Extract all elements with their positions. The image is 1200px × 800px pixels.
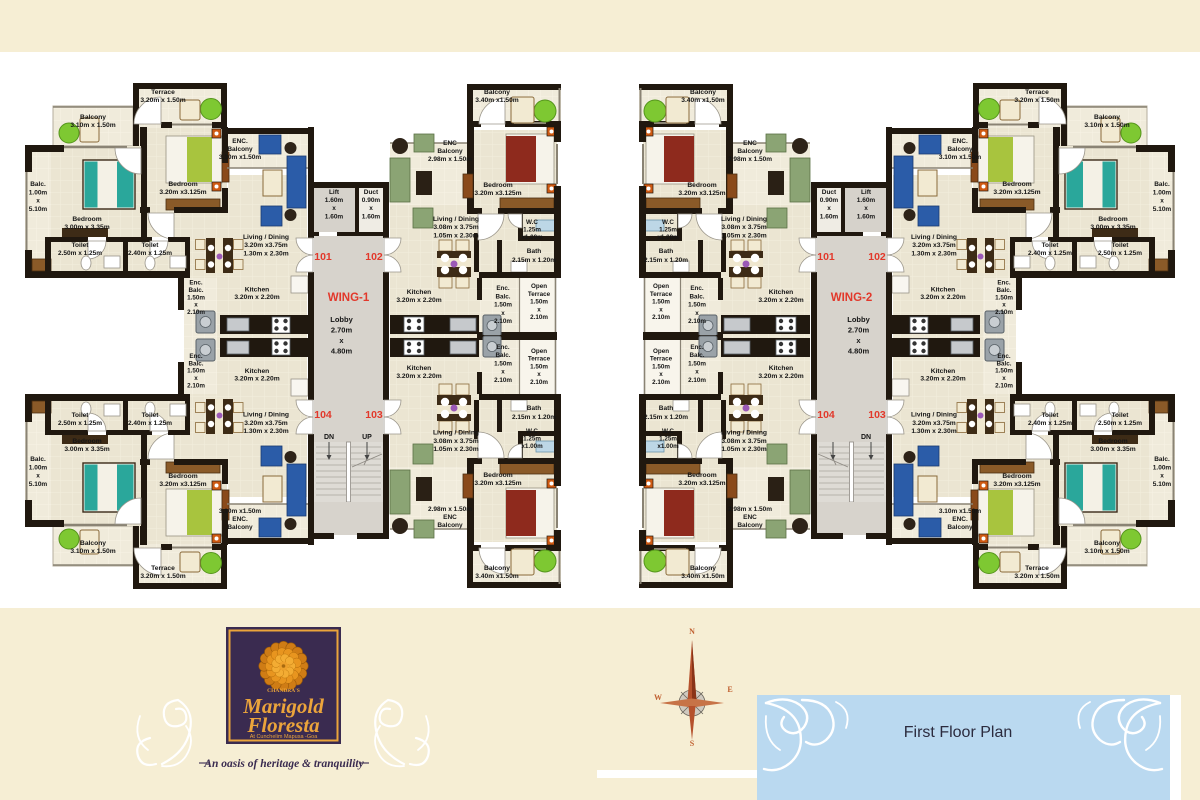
svg-text:Living / Dining: Living / Dining — [911, 234, 957, 241]
svg-text:Bedroom: Bedroom — [72, 216, 101, 223]
svg-text:Bedroom: Bedroom — [483, 182, 512, 189]
svg-text:An oasis of heritage & tranqui: An oasis of heritage & tranquility — [203, 758, 364, 770]
svg-text:3.20m x3.75m: 3.20m x3.75m — [912, 242, 956, 249]
svg-text:1.30m x 2.30m: 1.30m x 2.30m — [243, 428, 288, 435]
svg-text:x: x — [695, 310, 699, 317]
svg-text:1.50m: 1.50m — [688, 360, 706, 367]
svg-text:ENC.: ENC. — [232, 138, 248, 145]
svg-text:Open: Open — [531, 283, 547, 290]
svg-text:x: x — [1002, 302, 1006, 309]
svg-text:x: x — [537, 306, 541, 313]
svg-text:2.15m x 1.20m: 2.15m x 1.20m — [512, 257, 556, 264]
svg-text:Enc.: Enc. — [690, 344, 704, 351]
svg-text:Lift: Lift — [329, 189, 340, 196]
svg-text:Toilet: Toilet — [1112, 412, 1130, 419]
svg-text:x: x — [1160, 473, 1164, 480]
svg-text:Balc.: Balc. — [30, 181, 46, 188]
svg-text:1.00m: 1.00m — [1153, 464, 1172, 471]
svg-text:First Floor Plan: First Floor Plan — [904, 724, 1012, 741]
svg-text:x: x — [36, 198, 40, 205]
svg-text:3.20m x3.125m: 3.20m x3.125m — [993, 189, 1040, 196]
svg-text:3.20m x3.125m: 3.20m x3.125m — [993, 481, 1040, 488]
svg-text:x: x — [194, 375, 198, 382]
svg-text:1.50m: 1.50m — [652, 299, 670, 306]
svg-text:Balcony: Balcony — [690, 89, 716, 96]
svg-text:Terrace: Terrace — [528, 291, 551, 298]
svg-text:Balcony: Balcony — [1094, 540, 1120, 547]
svg-text:Balc.: Balc. — [689, 293, 704, 300]
svg-text:Living / Dining: Living / Dining — [433, 216, 479, 223]
svg-text:3.20m x3.125m: 3.20m x3.125m — [159, 481, 206, 488]
svg-text:Balc.: Balc. — [495, 293, 510, 300]
svg-text:Kitchen: Kitchen — [407, 365, 432, 372]
svg-text:5.10m: 5.10m — [29, 206, 48, 213]
svg-text:1.50m: 1.50m — [187, 368, 205, 375]
svg-text:3.10m x 1.50m: 3.10m x 1.50m — [70, 122, 115, 129]
svg-text:3.20m x3.75m: 3.20m x3.75m — [244, 242, 288, 249]
svg-text:Bedroom: Bedroom — [1002, 181, 1031, 188]
svg-text:2.50m x 1.25m: 2.50m x 1.25m — [1098, 250, 1142, 257]
svg-text:1.60m: 1.60m — [325, 197, 344, 204]
svg-text:Balcony: Balcony — [227, 146, 253, 153]
svg-text:x: x — [827, 205, 831, 212]
svg-text:1.30m x 2.30m: 1.30m x 2.30m — [911, 428, 956, 435]
svg-text:x: x — [537, 371, 541, 378]
svg-text:Balcony: Balcony — [437, 522, 463, 529]
svg-text:1.05m x 2.30m: 1.05m x 2.30m — [721, 232, 766, 239]
svg-text:1.00m: 1.00m — [29, 189, 48, 196]
svg-text:3.20m x3.75m: 3.20m x3.75m — [912, 420, 956, 427]
svg-text:Enc.: Enc. — [189, 353, 203, 360]
svg-text:Balcony: Balcony — [484, 89, 510, 96]
svg-text:W.C: W.C — [526, 219, 538, 226]
svg-text:2.50m x 1.25m: 2.50m x 1.25m — [58, 420, 102, 427]
svg-text:x1.00m: x1.00m — [657, 234, 679, 241]
svg-text:103: 103 — [365, 409, 383, 421]
svg-text:3.10m x1.50m: 3.10m x1.50m — [939, 508, 982, 515]
svg-text:2.15m x 1.20m: 2.15m x 1.20m — [644, 414, 688, 421]
svg-text:x: x — [1002, 375, 1006, 382]
svg-text:103: 103 — [868, 409, 886, 421]
svg-text:1.30m x 2.30m: 1.30m x 2.30m — [243, 250, 288, 257]
svg-text:ENC: ENC — [443, 140, 457, 147]
svg-text:Toilet: Toilet — [1112, 242, 1130, 249]
svg-text:Bedroom: Bedroom — [1098, 216, 1127, 223]
svg-text:2.10m: 2.10m — [995, 383, 1013, 390]
svg-text:1.30m x 2.30m: 1.30m x 2.30m — [911, 250, 956, 257]
svg-text:x: x — [36, 473, 40, 480]
svg-text:Living / Dining: Living / Dining — [721, 216, 767, 223]
svg-text:Balcony: Balcony — [1094, 114, 1120, 121]
svg-text:2.50m x 1.25m: 2.50m x 1.25m — [58, 250, 102, 257]
svg-text:Enc.: Enc. — [496, 285, 510, 292]
svg-text:3.40m x1.50m: 3.40m x1.50m — [475, 573, 519, 580]
svg-text:1.25m: 1.25m — [659, 436, 677, 443]
svg-text:5.10m: 5.10m — [1153, 206, 1172, 213]
svg-text:UP: UP — [362, 434, 372, 441]
svg-text:Kitchen: Kitchen — [931, 287, 956, 294]
svg-text:2.98m x 1.50m: 2.98m x 1.50m — [728, 156, 772, 163]
svg-text:ENC: ENC — [743, 514, 757, 521]
svg-text:ENC: ENC — [443, 514, 457, 521]
svg-text:Balcony: Balcony — [690, 565, 716, 572]
svg-text:DN: DN — [324, 434, 334, 441]
svg-text:2.15m x 1.20m: 2.15m x 1.20m — [512, 414, 556, 421]
svg-text:3.20m x 1.50m: 3.20m x 1.50m — [1014, 573, 1059, 580]
svg-text:Balcony: Balcony — [437, 148, 463, 155]
svg-text:Balc.: Balc. — [996, 360, 1011, 367]
svg-text:2.10m: 2.10m — [688, 377, 706, 384]
svg-text:2.10m: 2.10m — [995, 309, 1013, 316]
svg-text:Balc.: Balc. — [188, 287, 203, 294]
svg-text:Lobby: Lobby — [847, 315, 870, 324]
svg-text:Bath: Bath — [659, 248, 673, 255]
svg-text:1.25m: 1.25m — [523, 436, 541, 443]
svg-text:2.70m: 2.70m — [848, 326, 870, 335]
svg-text:0.90m: 0.90m — [820, 197, 839, 204]
svg-text:Living / Dining: Living / Dining — [721, 430, 767, 437]
svg-text:1.00m: 1.00m — [29, 464, 48, 471]
svg-text:Toilet: Toilet — [72, 242, 90, 249]
svg-text:Toilet: Toilet — [142, 242, 160, 249]
svg-text:2.40m x 1.25m: 2.40m x 1.25m — [1028, 250, 1072, 257]
svg-text:Open: Open — [531, 348, 547, 355]
svg-text:5.10m: 5.10m — [1153, 481, 1172, 488]
svg-text:2.10m: 2.10m — [652, 379, 670, 386]
svg-text:3.20m x 2.20m: 3.20m x 2.20m — [758, 297, 803, 304]
svg-text:3.08m x 3.75m: 3.08m x 3.75m — [721, 438, 766, 445]
svg-text:2.40m x 1.25m: 2.40m x 1.25m — [128, 250, 172, 257]
svg-text:ENC.: ENC. — [952, 516, 968, 523]
svg-text:3.08m x 3.75m: 3.08m x 3.75m — [433, 224, 478, 231]
svg-text:Enc.: Enc. — [189, 280, 203, 287]
svg-text:3.10m x1.50m: 3.10m x1.50m — [939, 154, 982, 161]
svg-text:Balc.: Balc. — [30, 456, 46, 463]
svg-text:Kitchen: Kitchen — [769, 365, 794, 372]
svg-text:WING-2: WING-2 — [831, 292, 873, 304]
svg-text:Balcony: Balcony — [484, 565, 510, 572]
svg-text:x: x — [501, 369, 505, 376]
svg-text:1.05m x 2.30m: 1.05m x 2.30m — [433, 232, 478, 239]
svg-text:At Cunchelim Mapusa -Goa: At Cunchelim Mapusa -Goa — [250, 734, 318, 740]
svg-text:104: 104 — [314, 409, 332, 421]
svg-text:2.10m: 2.10m — [688, 318, 706, 325]
svg-text:4.80m: 4.80m — [331, 347, 353, 356]
svg-text:Terrace: Terrace — [1025, 89, 1049, 96]
svg-text:3.20m x 1.50m: 3.20m x 1.50m — [1014, 97, 1059, 104]
svg-text:2.10m: 2.10m — [187, 309, 205, 316]
svg-text:Balcony: Balcony — [227, 524, 253, 531]
svg-text:Balcony: Balcony — [947, 524, 973, 531]
svg-text:1.50m: 1.50m — [995, 294, 1013, 301]
svg-text:3.10m x 1.50m: 3.10m x 1.50m — [1084, 548, 1129, 555]
svg-text:Bedroom: Bedroom — [168, 181, 197, 188]
svg-text:1.05m x 2.30m: 1.05m x 2.30m — [721, 446, 766, 453]
svg-text:Bedroom: Bedroom — [687, 472, 716, 479]
svg-text:2.70m: 2.70m — [331, 326, 353, 335]
svg-text:Terrace: Terrace — [528, 356, 551, 363]
svg-text:2.10m: 2.10m — [187, 383, 205, 390]
svg-text:3.20m x 2.20m: 3.20m x 2.20m — [396, 373, 441, 380]
svg-text:Terrace: Terrace — [1025, 565, 1049, 572]
svg-text:1.50m: 1.50m — [652, 363, 670, 370]
svg-text:Bath: Bath — [527, 248, 541, 255]
svg-text:W.C: W.C — [662, 428, 674, 435]
svg-text:Bedroom: Bedroom — [1002, 473, 1031, 480]
svg-text:Bedroom: Bedroom — [483, 472, 512, 479]
svg-text:2.10m: 2.10m — [652, 314, 670, 321]
svg-text:3.10m x 1.50m: 3.10m x 1.50m — [1084, 122, 1129, 129]
svg-text:1.60m: 1.60m — [325, 213, 344, 220]
svg-text:Bedroom: Bedroom — [1098, 438, 1127, 445]
svg-text:E: E — [727, 685, 732, 694]
svg-text:Balc.: Balc. — [996, 287, 1011, 294]
svg-text:2.40m x 1.25m: 2.40m x 1.25m — [1028, 420, 1072, 427]
svg-text:3.20m x 1.50m: 3.20m x 1.50m — [140, 97, 185, 104]
svg-text:3.20m x3.125m: 3.20m x3.125m — [678, 480, 725, 487]
svg-text:x: x — [194, 302, 198, 309]
svg-text:3.20m x3.125m: 3.20m x3.125m — [474, 190, 521, 197]
svg-text:Terrace: Terrace — [151, 565, 175, 572]
svg-text:102: 102 — [365, 251, 383, 263]
svg-text:3.20m x 2.20m: 3.20m x 2.20m — [234, 294, 279, 301]
svg-text:2.10m: 2.10m — [530, 379, 548, 386]
svg-text:x1.00m: x1.00m — [521, 443, 543, 450]
svg-text:3.40m x1.50m: 3.40m x1.50m — [681, 97, 725, 104]
svg-text:Kitchen: Kitchen — [769, 289, 794, 296]
svg-text:3.00m x 3.35m: 3.00m x 3.35m — [64, 446, 109, 453]
svg-text:Balc.: Balc. — [1154, 181, 1170, 188]
svg-text:Balcony: Balcony — [947, 146, 973, 153]
svg-text:0.90m: 0.90m — [362, 197, 381, 204]
svg-text:Balc.: Balc. — [689, 352, 704, 359]
svg-text:3.10m x 1.50m: 3.10m x 1.50m — [70, 548, 115, 555]
svg-text:3.20m x 2.20m: 3.20m x 2.20m — [234, 376, 279, 383]
svg-text:5.10m: 5.10m — [29, 481, 48, 488]
svg-text:1.50m: 1.50m — [995, 368, 1013, 375]
svg-text:Bedroom: Bedroom — [687, 182, 716, 189]
svg-text:Kitchen: Kitchen — [931, 368, 956, 375]
svg-text:Balc.: Balc. — [188, 360, 203, 367]
svg-text:x1.00m: x1.00m — [521, 234, 543, 241]
svg-text:ENC.: ENC. — [232, 516, 248, 523]
svg-text:2.98m x 1.50m: 2.98m x 1.50m — [728, 506, 772, 513]
svg-text:2.50m x 1.25m: 2.50m x 1.25m — [1098, 420, 1142, 427]
svg-text:Living / Dining: Living / Dining — [911, 412, 957, 419]
svg-text:2.98m x 1.50m: 2.98m x 1.50m — [428, 156, 472, 163]
svg-text:Balc.: Balc. — [495, 352, 510, 359]
svg-text:S: S — [690, 739, 695, 748]
svg-text:4.80m: 4.80m — [848, 347, 870, 356]
svg-text:3.20m x 2.20m: 3.20m x 2.20m — [920, 376, 965, 383]
svg-text:Kitchen: Kitchen — [245, 368, 270, 375]
svg-text:Terrace: Terrace — [650, 356, 673, 363]
svg-text:Bath: Bath — [527, 405, 541, 412]
svg-text:Enc.: Enc. — [496, 344, 510, 351]
svg-text:2.10m: 2.10m — [494, 377, 512, 384]
svg-text:x: x — [332, 205, 336, 212]
svg-text:2.10m: 2.10m — [530, 314, 548, 321]
svg-text:1.50m: 1.50m — [530, 363, 548, 370]
svg-text:3.40m x1.50m: 3.40m x1.50m — [681, 573, 725, 580]
svg-text:101: 101 — [817, 251, 835, 263]
svg-text:Toilet: Toilet — [1042, 412, 1060, 419]
svg-text:3.20m x 2.20m: 3.20m x 2.20m — [920, 294, 965, 301]
svg-text:x: x — [864, 205, 868, 212]
svg-text:3.08m x 3.75m: 3.08m x 3.75m — [721, 224, 766, 231]
svg-text:2.40m x 1.25m: 2.40m x 1.25m — [128, 420, 172, 427]
svg-text:1.60m: 1.60m — [362, 213, 381, 220]
svg-text:Balcony: Balcony — [80, 540, 106, 547]
svg-text:Balc.: Balc. — [1154, 456, 1170, 463]
svg-text:1.25m: 1.25m — [659, 227, 677, 234]
svg-text:1.60m: 1.60m — [820, 213, 839, 220]
svg-text:1.05m x 2.30m: 1.05m x 2.30m — [433, 446, 478, 453]
svg-text:ENC: ENC — [743, 140, 757, 147]
svg-text:101: 101 — [314, 251, 332, 263]
svg-text:WING-1: WING-1 — [328, 292, 370, 304]
svg-text:3.10m x1.50m: 3.10m x1.50m — [219, 508, 262, 515]
svg-text:1.50m: 1.50m — [688, 302, 706, 309]
svg-text:1.50m: 1.50m — [494, 302, 512, 309]
svg-text:3.20m x 2.20m: 3.20m x 2.20m — [758, 373, 803, 380]
svg-text:Toilet: Toilet — [142, 412, 160, 419]
svg-text:ENC.: ENC. — [952, 138, 968, 145]
svg-text:1.60m: 1.60m — [857, 213, 876, 220]
svg-text:3.20m x 2.20m: 3.20m x 2.20m — [396, 297, 441, 304]
svg-text:Balcony: Balcony — [80, 114, 106, 121]
svg-text:Living / Dining: Living / Dining — [243, 412, 289, 419]
svg-text:Lift: Lift — [861, 189, 872, 196]
svg-text:N: N — [689, 627, 695, 636]
svg-text:1.60m: 1.60m — [857, 197, 876, 204]
svg-text:x: x — [659, 306, 663, 313]
svg-text:3.00m x 3.35m: 3.00m x 3.35m — [1090, 224, 1135, 231]
svg-text:x1.00m: x1.00m — [657, 443, 679, 450]
svg-text:Living / Dining: Living / Dining — [433, 430, 479, 437]
svg-text:1.50m: 1.50m — [530, 299, 548, 306]
svg-text:104: 104 — [817, 409, 835, 421]
svg-text:Duct: Duct — [364, 189, 379, 196]
svg-text:Kitchen: Kitchen — [245, 287, 270, 294]
svg-text:3.20m x 1.50m: 3.20m x 1.50m — [140, 573, 185, 580]
svg-text:W.C: W.C — [662, 219, 674, 226]
svg-text:W.C: W.C — [526, 428, 538, 435]
svg-text:1.25m: 1.25m — [523, 227, 541, 234]
svg-text:W: W — [654, 693, 662, 702]
svg-text:Bedroom: Bedroom — [168, 473, 197, 480]
svg-text:x: x — [501, 310, 505, 317]
svg-text:Bath: Bath — [659, 405, 673, 412]
svg-text:Terrace: Terrace — [151, 89, 175, 96]
svg-text:1.50m: 1.50m — [187, 294, 205, 301]
svg-text:Toilet: Toilet — [1042, 242, 1060, 249]
svg-text:Bedroom: Bedroom — [72, 438, 101, 445]
svg-text:Duct: Duct — [822, 189, 837, 196]
svg-text:2.10m: 2.10m — [494, 318, 512, 325]
svg-text:Enc.: Enc. — [997, 353, 1011, 360]
svg-text:Lobby: Lobby — [330, 315, 353, 324]
svg-text:Terrace: Terrace — [650, 291, 673, 298]
svg-text:3.20m x3.125m: 3.20m x3.125m — [474, 480, 521, 487]
svg-text:x: x — [369, 205, 373, 212]
svg-text:3.20m x3.125m: 3.20m x3.125m — [159, 189, 206, 196]
svg-text:3.00m x 3.35m: 3.00m x 3.35m — [1090, 446, 1135, 453]
svg-text:DN: DN — [861, 434, 871, 441]
svg-text:Enc.: Enc. — [690, 285, 704, 292]
svg-text:Open: Open — [653, 283, 669, 290]
svg-text:x: x — [695, 369, 699, 376]
svg-text:3.20m x3.75m: 3.20m x3.75m — [244, 420, 288, 427]
svg-text:Enc.: Enc. — [997, 280, 1011, 287]
svg-text:Kitchen: Kitchen — [407, 289, 432, 296]
svg-text:3.40m x1.50m: 3.40m x1.50m — [475, 97, 519, 104]
svg-text:Open: Open — [653, 348, 669, 355]
svg-text:1.00m: 1.00m — [1153, 189, 1172, 196]
svg-text:Toilet: Toilet — [72, 412, 90, 419]
svg-text:Balcony: Balcony — [737, 522, 763, 529]
svg-text:x: x — [1160, 198, 1164, 205]
svg-text:Living / Dining: Living / Dining — [243, 234, 289, 241]
svg-text:2.98m x 1.50m: 2.98m x 1.50m — [428, 506, 472, 513]
svg-text:3.20m x3.125m: 3.20m x3.125m — [678, 190, 725, 197]
svg-text:3.10m x1.50m: 3.10m x1.50m — [219, 154, 262, 161]
svg-text:1.50m: 1.50m — [494, 360, 512, 367]
svg-text:Balcony: Balcony — [737, 148, 763, 155]
svg-text:102: 102 — [868, 251, 886, 263]
svg-text:2.15m x 1.20m: 2.15m x 1.20m — [644, 257, 688, 264]
svg-text:x: x — [659, 371, 663, 378]
svg-text:3.00m x 3.35m: 3.00m x 3.35m — [64, 224, 109, 231]
svg-text:3.08m x 3.75m: 3.08m x 3.75m — [433, 438, 478, 445]
